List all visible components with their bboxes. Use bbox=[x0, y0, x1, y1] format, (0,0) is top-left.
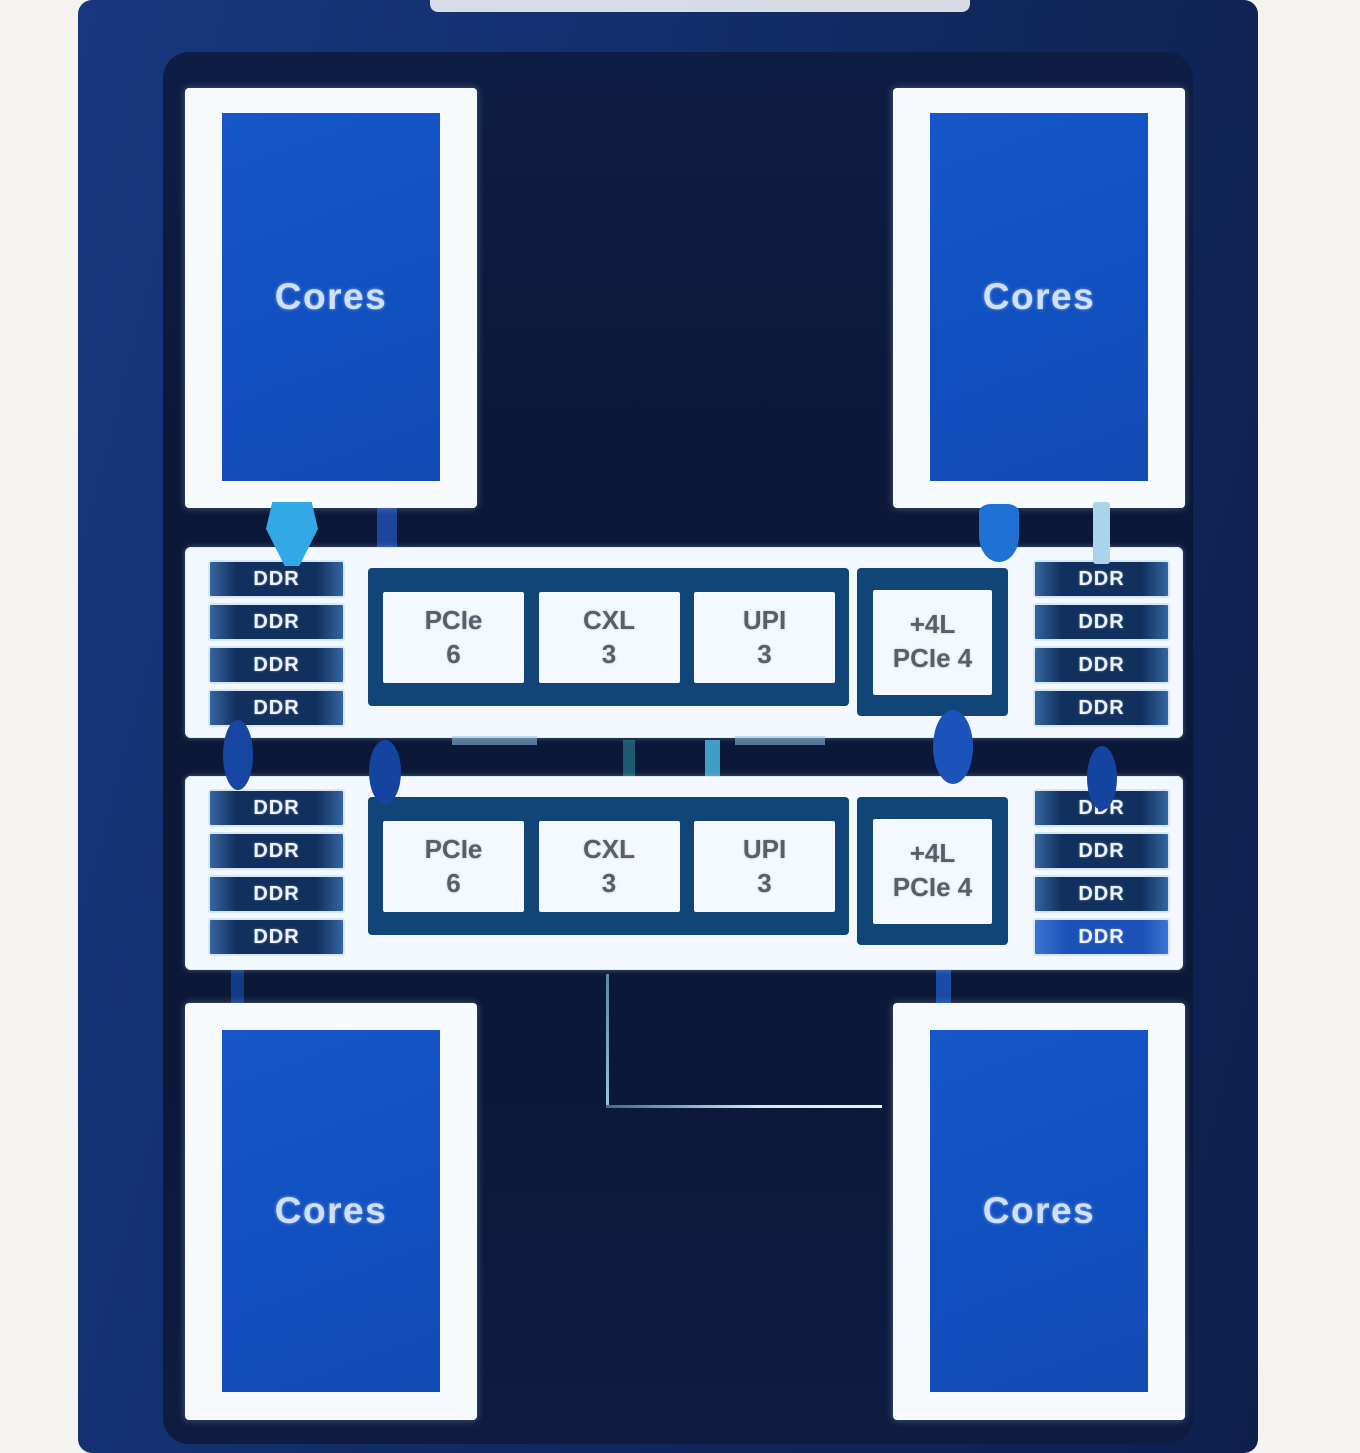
cxl3-block: CXL 3 bbox=[539, 821, 680, 912]
pcie4-extra-container: +4L PCIe 4 bbox=[857, 797, 1008, 945]
link-rows-teal-dark-line bbox=[623, 740, 635, 778]
cxl3-label: CXL bbox=[583, 833, 635, 867]
cores-label: Cores bbox=[275, 276, 387, 318]
ddr-channel: DDR bbox=[208, 603, 345, 641]
cores-block-bottom-right: Cores bbox=[893, 1003, 1185, 1420]
ddr-channel: DDR bbox=[208, 646, 345, 684]
link-rows-left-ellipse-1 bbox=[223, 720, 253, 790]
cores-tile: Cores bbox=[222, 1030, 440, 1392]
pcie6-gen: 6 bbox=[446, 867, 460, 901]
ddr-channel: DDR bbox=[208, 918, 345, 956]
pcie4-extra-block: +4L PCIe 4 bbox=[873, 590, 992, 695]
upi3-gen: 3 bbox=[757, 638, 771, 672]
ddr-channel: DDR bbox=[208, 789, 345, 827]
pcie4-label: PCIe 4 bbox=[893, 642, 973, 676]
pcie4-label: PCIe 4 bbox=[893, 871, 973, 905]
cxl3-label: CXL bbox=[583, 604, 635, 638]
ddr-channel: DDR bbox=[1033, 689, 1170, 727]
pcie4-lanes: +4L bbox=[910, 608, 956, 642]
link-rows-right-ellipse-1 bbox=[933, 710, 973, 784]
io-row-1: DDR DDR DDR DDR PCIe 6 CXL 3 UPI 3 bbox=[185, 547, 1183, 738]
cores-tile: Cores bbox=[930, 1030, 1148, 1392]
pcie6-block: PCIe 6 bbox=[383, 821, 524, 912]
pcie4-extra-container: +4L PCIe 4 bbox=[857, 568, 1008, 716]
cxl3-gen: 3 bbox=[602, 638, 616, 672]
cxl3-gen: 3 bbox=[602, 867, 616, 901]
bar-edge-streak-1 bbox=[452, 736, 537, 745]
upi3-block: UPI 3 bbox=[694, 592, 835, 683]
ddr-channel: DDR bbox=[208, 832, 345, 870]
link-rows-left-ellipse-2 bbox=[369, 740, 401, 804]
upi3-label: UPI bbox=[743, 604, 786, 638]
cores-label: Cores bbox=[275, 1190, 387, 1232]
pcie6-gen: 6 bbox=[446, 638, 460, 672]
pcie6-block: PCIe 6 bbox=[383, 592, 524, 683]
ddr-column-left: DDR DDR DDR DDR bbox=[208, 560, 345, 727]
ddr-channel: DDR bbox=[208, 875, 345, 913]
pcie4-extra-block: +4L PCIe 4 bbox=[873, 819, 992, 924]
ddr-column-right: DDR DDR DDR DDR bbox=[1033, 789, 1170, 956]
ddr-channel: DDR bbox=[1033, 603, 1170, 641]
cores-block-top-left: Cores bbox=[185, 88, 477, 508]
io-row-2: DDR DDR DDR DDR PCIe 6 CXL 3 UPI 3 bbox=[185, 776, 1183, 970]
link-rows-teal-bright-line bbox=[705, 740, 720, 778]
cores-label: Cores bbox=[983, 1190, 1095, 1232]
architecture-diagram: Cores Cores Cores Cores DDR DDR DDR DDR … bbox=[0, 0, 1360, 1453]
link-rows-right-ellipse-2 bbox=[1087, 746, 1117, 810]
ddr-channel: DDR bbox=[1033, 646, 1170, 684]
ddr-column-right: DDR DDR DDR DDR bbox=[1033, 560, 1170, 727]
bar-edge-streak-2 bbox=[735, 736, 825, 745]
upi3-label: UPI bbox=[743, 833, 786, 867]
link-elbow-vertical-line bbox=[606, 974, 609, 1108]
ddr-channel-highlighted: DDR bbox=[1033, 918, 1170, 956]
ddr-channel: DDR bbox=[1033, 875, 1170, 913]
cores-label: Cores bbox=[983, 276, 1095, 318]
link-elbow-horizontal-line bbox=[606, 1105, 882, 1108]
cores-block-bottom-left: Cores bbox=[185, 1003, 477, 1420]
ddr-column-left: DDR DDR DDR DDR bbox=[208, 789, 345, 956]
link-cores-tr-pale-line bbox=[1093, 502, 1110, 564]
ddr-channel: DDR bbox=[1033, 832, 1170, 870]
link-cores-tr-blue-drop bbox=[979, 504, 1019, 562]
ddr-channel: DDR bbox=[208, 689, 345, 727]
ddr-channel: DDR bbox=[1033, 560, 1170, 598]
pcie6-label: PCIe bbox=[425, 833, 483, 867]
upi3-block: UPI 3 bbox=[694, 821, 835, 912]
cores-block-top-right: Cores bbox=[893, 88, 1185, 508]
cxl3-block: CXL 3 bbox=[539, 592, 680, 683]
io-hub: PCIe 6 CXL 3 UPI 3 bbox=[368, 797, 849, 935]
ddr-channel: DDR bbox=[208, 560, 345, 598]
io-hub: PCIe 6 CXL 3 UPI 3 bbox=[368, 568, 849, 706]
pcie4-lanes: +4L bbox=[910, 837, 956, 871]
upi3-gen: 3 bbox=[757, 867, 771, 901]
pcie6-label: PCIe bbox=[425, 604, 483, 638]
cores-tile: Cores bbox=[930, 113, 1148, 481]
top-light-streak bbox=[430, 0, 970, 12]
cores-tile: Cores bbox=[222, 113, 440, 481]
